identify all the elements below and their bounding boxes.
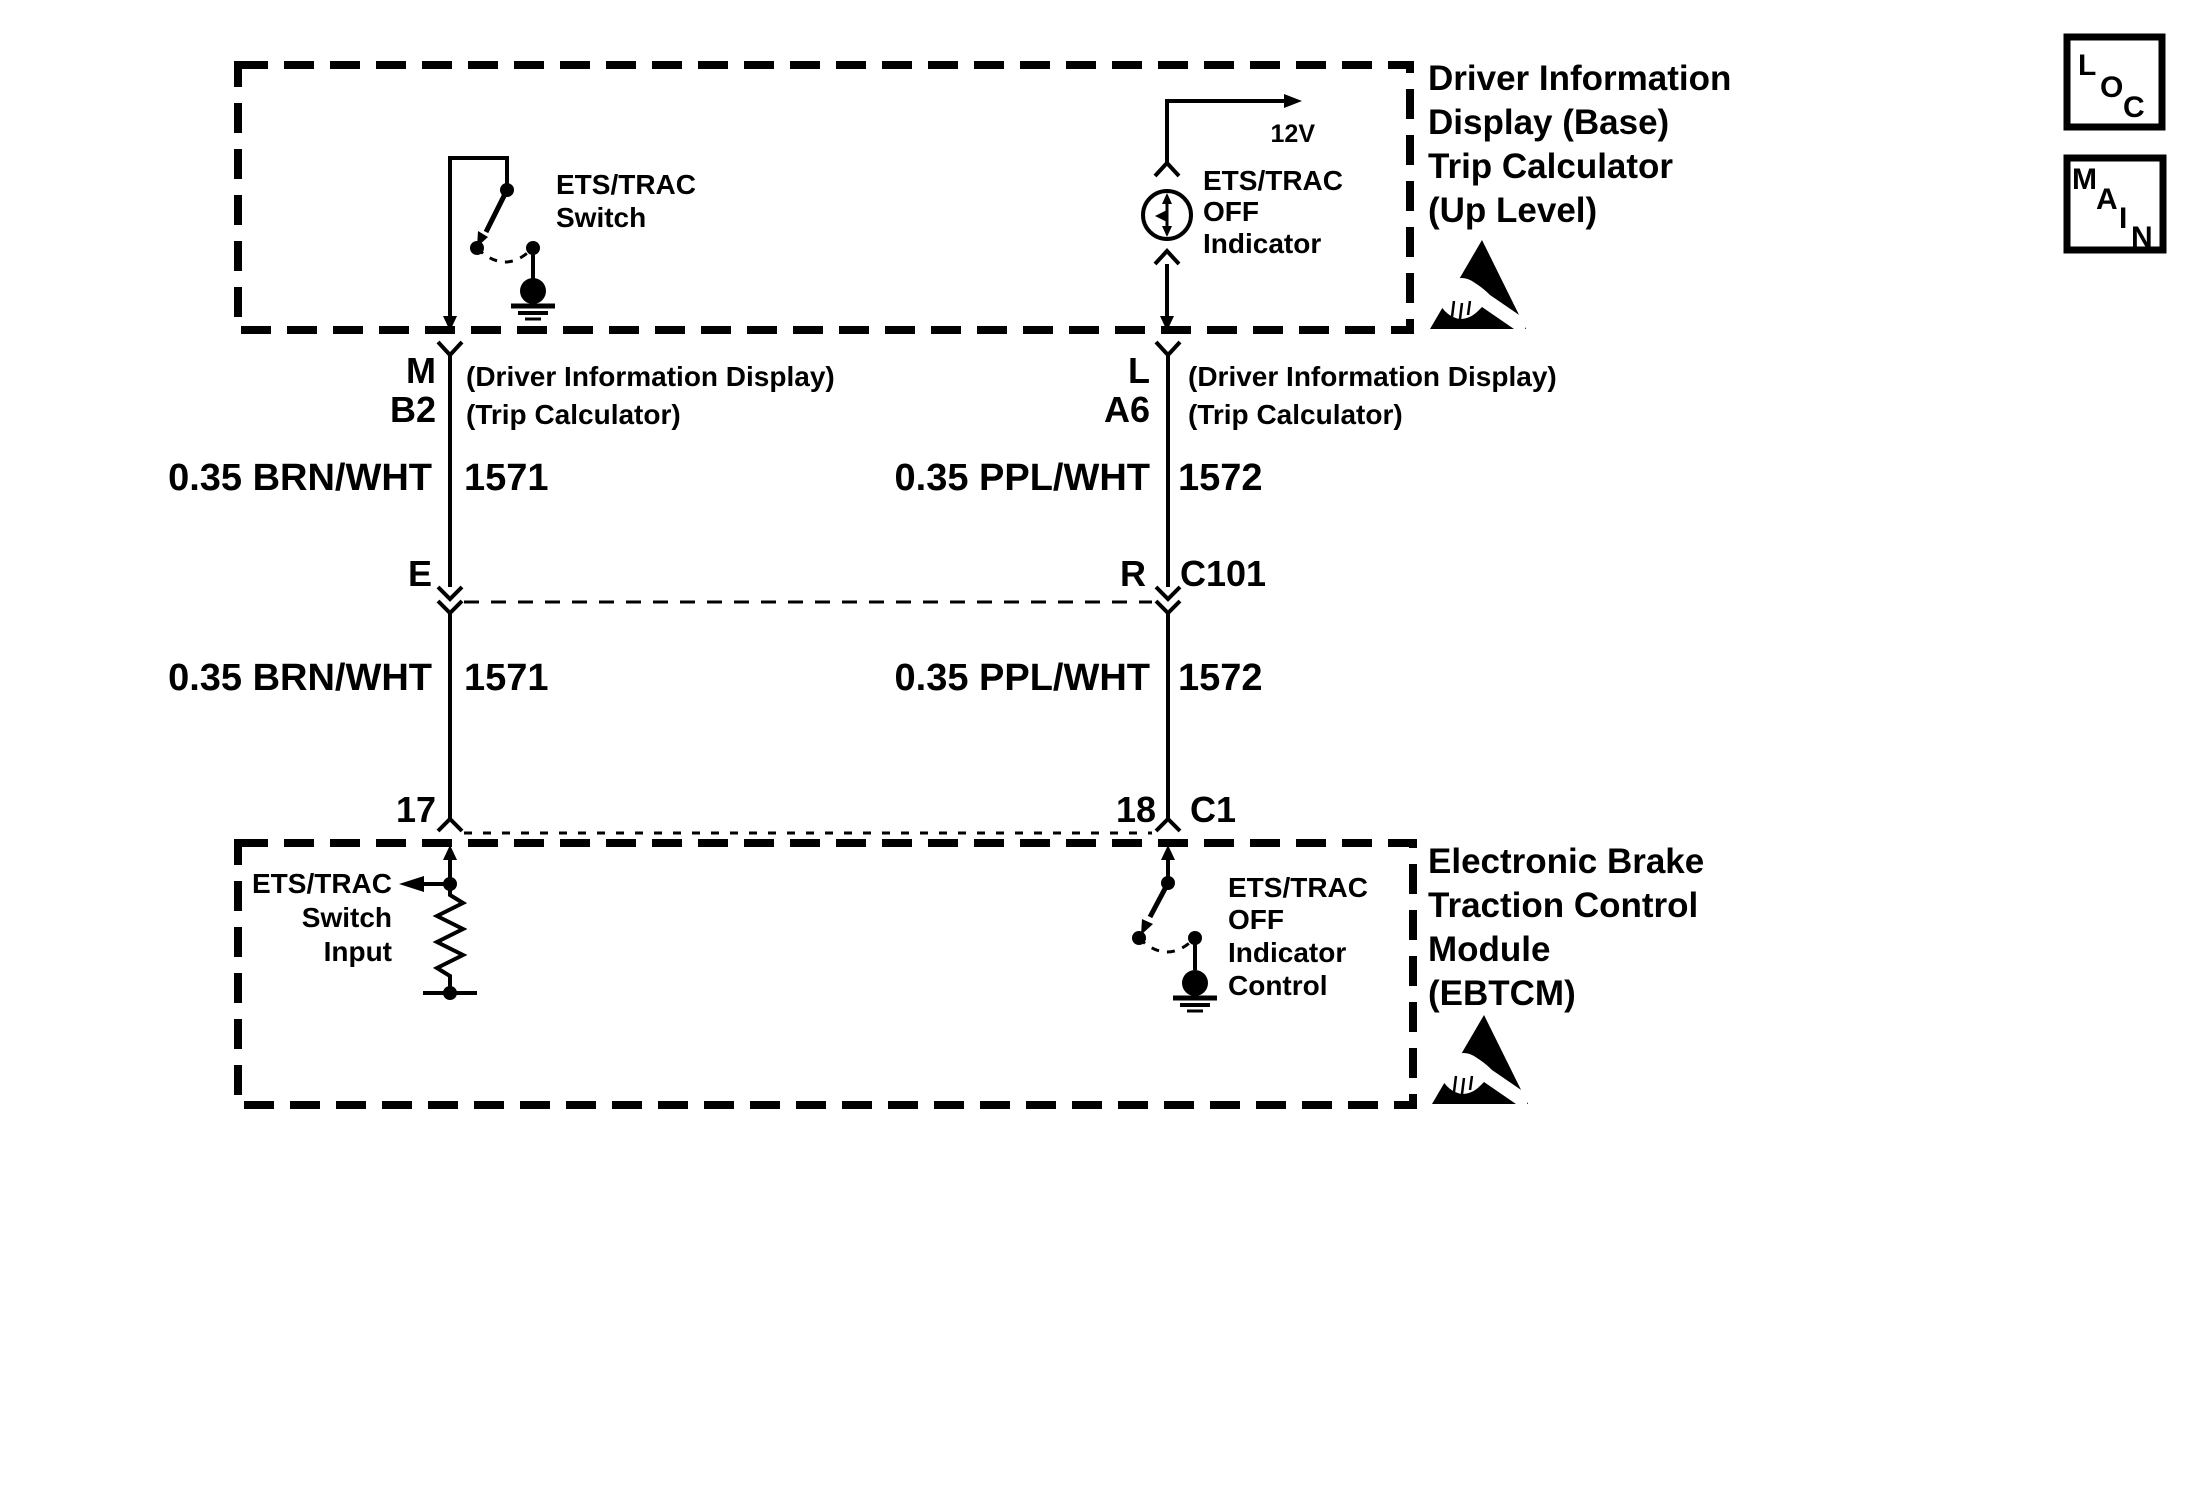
wire-spec-label: 0.35 BRN/WHT [168, 457, 432, 499]
wiring-diagram-page: ETS/TRAC Switch 12V ETS/TRAC OFF Indicat… [0, 0, 2212, 1488]
main-letter-m[interactable]: M [2072, 163, 2097, 196]
did-title-line1: Driver Information [1428, 59, 1731, 98]
circuit-number-label: 1571 [464, 657, 549, 699]
connector-chevron [1156, 342, 1180, 355]
ground-ball [1182, 970, 1208, 996]
filament-arrow-up-icon [1162, 193, 1172, 204]
arrowhead-up-icon [443, 845, 457, 860]
main-button[interactable]: M A I N [2067, 158, 2163, 254]
connector-chevron [438, 587, 462, 599]
loc-letter-o[interactable]: O [2100, 71, 2123, 104]
switch-arm [486, 190, 507, 232]
switch-label-line2: Switch [556, 202, 646, 233]
supply-voltage-label: 12V [1271, 120, 1316, 148]
arrowhead-right-icon [1284, 94, 1302, 108]
resistor-symbol [437, 884, 463, 988]
indicator-control-label-line2: OFF [1228, 904, 1284, 935]
did-title-line2: Display (Base) [1428, 103, 1669, 142]
wire-run-1572 [1156, 342, 1180, 831]
connector-chevron [438, 819, 462, 831]
main-letter-n[interactable]: N [2131, 221, 2153, 254]
cavity-label-a6: A6 [1104, 389, 1150, 430]
indicator-control-label-line3: Indicator [1228, 937, 1346, 968]
pin-note: (Driver Information Display) [466, 361, 835, 392]
pin-label-e: E [408, 553, 432, 594]
indicator-label-line1: ETS/TRAC [1203, 165, 1343, 196]
indicator-control-label-line4: Control [1228, 970, 1328, 1001]
ground-ball [520, 278, 546, 304]
pin-label-r: R [1120, 553, 1146, 594]
main-letter-i[interactable]: I [2119, 202, 2127, 235]
pin-note: (Trip Calculator) [1188, 399, 1403, 430]
cavity-label-b2: B2 [390, 389, 436, 430]
pin-note: (Driver Information Display) [1188, 361, 1557, 392]
did-title-line4: (Up Level) [1428, 191, 1597, 230]
ebtcm-title-line1: Electronic Brake [1428, 842, 1704, 881]
pin-label-18: 18 [1116, 789, 1156, 830]
wire-spec-label: 0.35 PPL/WHT [895, 457, 1151, 499]
indicator-label-line3: Indicator [1203, 228, 1321, 259]
connector-chevron [1156, 587, 1180, 599]
loc-letter-c[interactable]: C [2123, 91, 2145, 124]
filament-arrow-left-icon [1155, 210, 1167, 222]
connector-chevron [438, 342, 462, 355]
switch-label-line1: ETS/TRAC [556, 169, 696, 200]
loc-letter-l[interactable]: L [2078, 49, 2096, 82]
connector-chevron [438, 601, 462, 613]
off-indicator-control-symbol [1132, 845, 1217, 1011]
pin-note: (Trip Calculator) [466, 399, 681, 430]
connector-label-c101: C101 [1180, 553, 1266, 594]
switch-input-label-line2: Switch [302, 902, 392, 933]
indicator-control-label-line1: ETS/TRAC [1228, 872, 1368, 903]
12v-feed-wire [1167, 101, 1284, 162]
arrowhead-left-icon [399, 876, 424, 892]
ebtcm-title-line2: Traction Control [1428, 886, 1698, 925]
main-letter-a[interactable]: A [2096, 183, 2118, 216]
wire-run-1571 [438, 342, 462, 831]
switch-arm [1150, 883, 1168, 917]
circuit-number-label: 1571 [464, 457, 549, 499]
ebtcm-title-line3: Module [1428, 930, 1550, 969]
pin-label-17: 17 [396, 789, 436, 830]
indicator-top-chevron [1155, 163, 1179, 176]
wire-spec-label: 0.35 PPL/WHT [895, 657, 1151, 699]
switch-travel-arc [477, 248, 533, 262]
filament-arrow-down-icon [1162, 226, 1172, 237]
circuit-number-label: 1572 [1178, 657, 1263, 699]
circuit-number-label: 1572 [1178, 457, 1263, 499]
indicator-label-line2: OFF [1203, 196, 1259, 227]
switch-input-label-line3: Input [324, 936, 392, 967]
connector-chevron [1156, 601, 1180, 613]
did-title-line3: Trip Calculator [1428, 147, 1673, 186]
switch-input-label-line1: ETS/TRAC [252, 868, 392, 899]
connector-chevron [1156, 819, 1180, 831]
indicator-bottom-chevron [1155, 251, 1179, 264]
pin-label-m: M [406, 350, 436, 391]
loc-button[interactable]: L O C [2067, 37, 2162, 127]
esd-sensitive-icon [1432, 1015, 1528, 1104]
esd-sensitive-icon [1430, 240, 1526, 329]
pin-label-l: L [1128, 350, 1150, 391]
switch-travel-arc [1139, 938, 1195, 952]
ets-trac-switch-symbol [443, 158, 555, 331]
ets-trac-switch-input-symbol [399, 845, 477, 1000]
connector-label-c1: C1 [1190, 789, 1236, 830]
ebtcm-title-line4: (EBTCM) [1428, 974, 1576, 1013]
wire-spec-label: 0.35 BRN/WHT [168, 657, 432, 699]
arrowhead-up-icon [1161, 845, 1175, 860]
wiring-diagram-svg: ETS/TRAC Switch 12V ETS/TRAC OFF Indicat… [0, 0, 2212, 1488]
